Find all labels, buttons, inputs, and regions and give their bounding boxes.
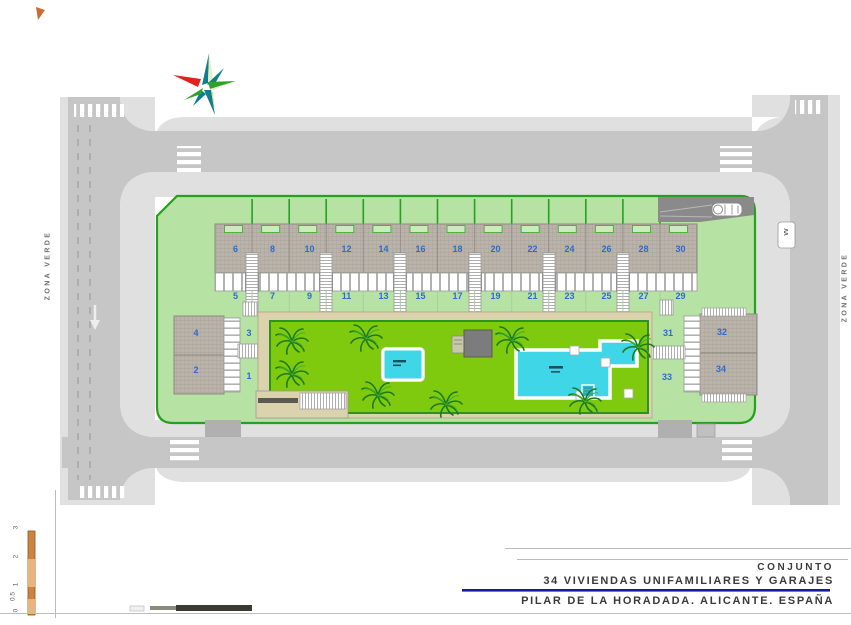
house-number: 5	[217, 291, 254, 301]
scale-tick: 0.5	[10, 590, 17, 604]
house-number: 11	[328, 291, 365, 301]
house-number: 16	[402, 244, 439, 254]
house-number: 29	[662, 291, 699, 301]
house-number: 6	[217, 244, 254, 254]
house-number: 28	[625, 244, 662, 254]
scale-tick: 0	[13, 604, 20, 618]
house-number: 31	[657, 328, 679, 338]
title-underline	[462, 589, 830, 592]
house-number: 14	[365, 244, 402, 254]
crosswalk-top-left	[74, 104, 124, 117]
house-number: 30	[662, 244, 699, 254]
house-number: 26	[588, 244, 625, 254]
house-number: 19	[477, 291, 514, 301]
car-icon	[712, 203, 742, 216]
house-number: 1	[238, 371, 260, 381]
house-number: 8	[254, 244, 291, 254]
house-number: 18	[439, 244, 476, 254]
driveway-west	[205, 420, 241, 437]
house-number: 32	[711, 327, 733, 337]
project-location: PILAR DE LA HORADADA. ALICANTE. ESPAÑA	[521, 595, 834, 607]
crosswalk-top-right	[795, 100, 822, 114]
crosswalk-bottom-east	[722, 438, 752, 464]
house-number: 21	[514, 291, 551, 301]
house-number: 20	[477, 244, 514, 254]
house-number: 17	[439, 291, 476, 301]
scale-bar-horizontal	[130, 605, 252, 611]
driveway-east	[658, 420, 692, 438]
parked-car-label: VV	[784, 215, 790, 249]
crosswalk-bottom-west	[170, 437, 199, 464]
house-number: 15	[402, 291, 439, 301]
house-number: 24	[551, 244, 588, 254]
zona-verde-right-label: ZONA VERDE	[842, 233, 849, 343]
crosswalk-bottom-left	[78, 486, 128, 498]
house-number: 33	[656, 372, 678, 382]
project-title: CONJUNTO	[757, 562, 834, 573]
house-number: 22	[514, 244, 551, 254]
house-number: 13	[365, 291, 402, 301]
house-number: 3	[238, 328, 260, 338]
project-subtitle: 34 VIVIENDAS UNIFAMILIARES Y GARAJES	[543, 575, 834, 587]
house-number: 9	[291, 291, 328, 301]
house-number: 34	[710, 364, 732, 374]
site-plan-page: ZONA VERDE ZONA VERDE VV 3 2 1 0.5 0 6 8…	[0, 0, 851, 625]
small-pool	[382, 348, 425, 382]
house-number: 4	[185, 328, 207, 338]
house-number: 23	[551, 291, 588, 301]
house-number: 25	[588, 291, 625, 301]
crosswalk-top-west	[177, 146, 201, 172]
house-number: 10	[291, 244, 328, 254]
compass-rose-icon	[173, 53, 236, 115]
scale-tick: 3	[13, 521, 20, 535]
scale-bar-vertical	[28, 7, 45, 615]
crosswalk-top-east	[720, 146, 752, 172]
house-number: 12	[328, 244, 365, 254]
sheet-corner-mark	[36, 7, 45, 20]
house-number: 27	[625, 291, 662, 301]
house-number: 7	[254, 291, 291, 301]
scale-tick: 2	[13, 550, 20, 564]
house-number: 2	[185, 365, 207, 375]
plan-graphics	[0, 0, 851, 625]
zona-verde-left-label: ZONA VERDE	[45, 211, 52, 321]
